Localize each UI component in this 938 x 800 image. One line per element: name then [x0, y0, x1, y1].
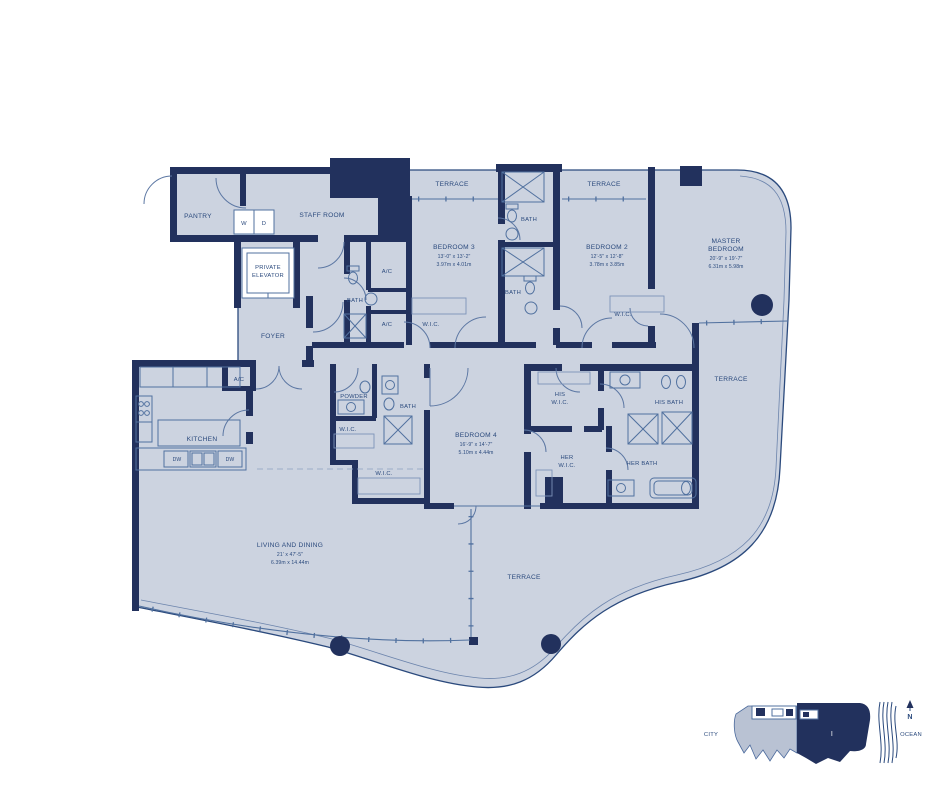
- wall-segment: [648, 167, 655, 289]
- wall-segment: [424, 364, 430, 378]
- column: [751, 294, 773, 316]
- label-bedroom4-dims-ft: 16'-9" x 14'-7": [460, 442, 493, 448]
- label-private-elevator: ELEVATOR: [252, 273, 284, 279]
- floor-plan-canvas: PANTRY STAFF ROOM W D PRIVATE ELEVATOR F…: [0, 0, 938, 800]
- wall-segment: [170, 167, 336, 174]
- label-bedroom2-dims-ft: 12'-5" x 12'-8": [591, 254, 624, 260]
- label-private-elevator: PRIVATE: [255, 265, 281, 271]
- label-bath-top: BATH: [521, 217, 537, 223]
- label-bedroom4-dims-m: 5.10m x 4.44m: [459, 450, 494, 456]
- wall-segment: [234, 242, 241, 308]
- label-her-bath: HER BATH: [627, 461, 658, 467]
- ocean-label: OCEAN: [900, 732, 922, 738]
- wall-segment: [424, 410, 430, 507]
- label-terrace-top-left: TERRACE: [435, 181, 469, 188]
- wall-segment: [606, 470, 612, 507]
- wall-segment: [524, 364, 531, 434]
- label-powder: POWDER: [340, 394, 368, 400]
- label-ac-upper: A/C: [382, 269, 392, 275]
- label-terrace-top-right: TERRACE: [587, 181, 621, 188]
- wall-segment: [598, 371, 604, 391]
- label-ac-kitchen: A/C: [234, 377, 244, 383]
- wall-segment: [612, 342, 656, 348]
- wall-segment: [598, 364, 694, 371]
- wall-segment: [170, 235, 318, 242]
- keyplan-city-label: CITY: [704, 732, 718, 738]
- keyplan-unit-letter: I: [831, 731, 833, 738]
- wall-segment: [302, 360, 314, 367]
- ocean-waves-icon: [879, 702, 897, 763]
- wall-segment: [524, 452, 531, 509]
- label-washer: W: [241, 221, 247, 227]
- label-bedroom2-dims-m: 3.78m x 3.85m: [590, 262, 625, 268]
- wall-segment: [246, 432, 253, 444]
- label-wic-bed4: W.I.C.: [375, 471, 392, 477]
- label-his-wic: W.I.C.: [551, 400, 568, 406]
- wall-segment: [680, 166, 702, 186]
- label-master-bedroom: MASTER: [712, 238, 741, 245]
- wall-segment: [430, 342, 536, 348]
- wall-segment: [530, 426, 572, 432]
- wall-segment: [580, 364, 600, 371]
- label-his-wic: HIS: [555, 392, 565, 398]
- label-bath-bed4: BATH: [400, 404, 416, 410]
- wall-segment: [553, 172, 560, 310]
- label-master-dims-m: 6.31m x 5.98m: [709, 264, 744, 270]
- wall-segment: [352, 460, 358, 504]
- label-wic-bed2: W.I.C.: [614, 312, 631, 318]
- label-bath-mid: BATH: [505, 290, 521, 296]
- label-foyer: FOYER: [261, 333, 285, 340]
- wall-segment: [540, 503, 699, 509]
- wall-segment: [496, 164, 562, 172]
- label-bath-staff: BATH: [347, 298, 363, 304]
- label-kitchen: KITCHEN: [187, 436, 218, 443]
- column: [330, 636, 350, 656]
- label-bedroom3-dims-ft: 13'-0" x 13'-2": [438, 254, 471, 260]
- label-bedroom3-dims-m: 3.97m x 4.01m: [437, 262, 472, 268]
- wall-segment: [372, 364, 377, 418]
- wall-segment: [170, 167, 177, 242]
- label-her-wic: W.I.C.: [558, 463, 575, 469]
- north-arrow-icon: [907, 700, 914, 711]
- label-bedroom2: BEDROOM 2: [586, 244, 628, 251]
- wall-segment: [368, 310, 406, 314]
- label-living-dims-m: 6.39m x 14.44m: [271, 560, 309, 566]
- label-her-wic: HER: [561, 455, 574, 461]
- label-his-bath: HIS BATH: [655, 400, 683, 406]
- column: [541, 634, 561, 654]
- label-ac-mid: A/C: [382, 322, 392, 328]
- wall-segment: [556, 342, 592, 348]
- label-staff-room: STAFF ROOM: [299, 212, 344, 219]
- label-living-dims-ft: 21' x 47'-5": [277, 552, 303, 558]
- label-bedroom4: BEDROOM 4: [455, 432, 497, 439]
- wall-segment: [500, 242, 558, 247]
- glass-corner-post: [469, 637, 478, 645]
- wall-segment: [545, 477, 563, 503]
- wall-segment: [246, 386, 253, 416]
- label-wic-powder: W.I.C.: [339, 427, 356, 433]
- label-wic-bed3: W.I.C.: [422, 322, 439, 328]
- wall-segment: [312, 342, 404, 348]
- core-block: [330, 158, 410, 198]
- wall-segment: [306, 296, 313, 328]
- door-arc: [144, 176, 172, 204]
- label-living-dining: LIVING AND DINING: [257, 542, 323, 549]
- wall-segment: [240, 174, 246, 206]
- wall-segment: [368, 288, 406, 292]
- label-bedroom3: BEDROOM 3: [433, 244, 475, 251]
- wall-segment: [584, 426, 602, 432]
- label-master-bedroom: BEDROOM: [708, 246, 744, 253]
- label-terrace-bottom: TERRACE: [507, 574, 541, 581]
- label-dw2: DW: [226, 457, 235, 463]
- label-terrace-master: TERRACE: [714, 376, 748, 383]
- label-pantry: PANTRY: [184, 213, 212, 220]
- label-master-dims-ft: 20'-9" x 19'-7": [710, 256, 743, 262]
- wall-segment: [352, 498, 428, 504]
- wall-segment: [330, 364, 336, 464]
- north-label: N: [907, 714, 912, 721]
- wall-segment: [132, 360, 256, 367]
- wall-segment: [366, 242, 371, 290]
- wall-segment: [530, 364, 562, 371]
- core-block: [378, 198, 408, 242]
- label-dw1: DW: [173, 457, 182, 463]
- key-plan: I CITY N OCEAN: [704, 700, 922, 764]
- wall-segment: [648, 326, 655, 342]
- wall-segment: [330, 416, 376, 421]
- label-dryer: D: [262, 221, 266, 227]
